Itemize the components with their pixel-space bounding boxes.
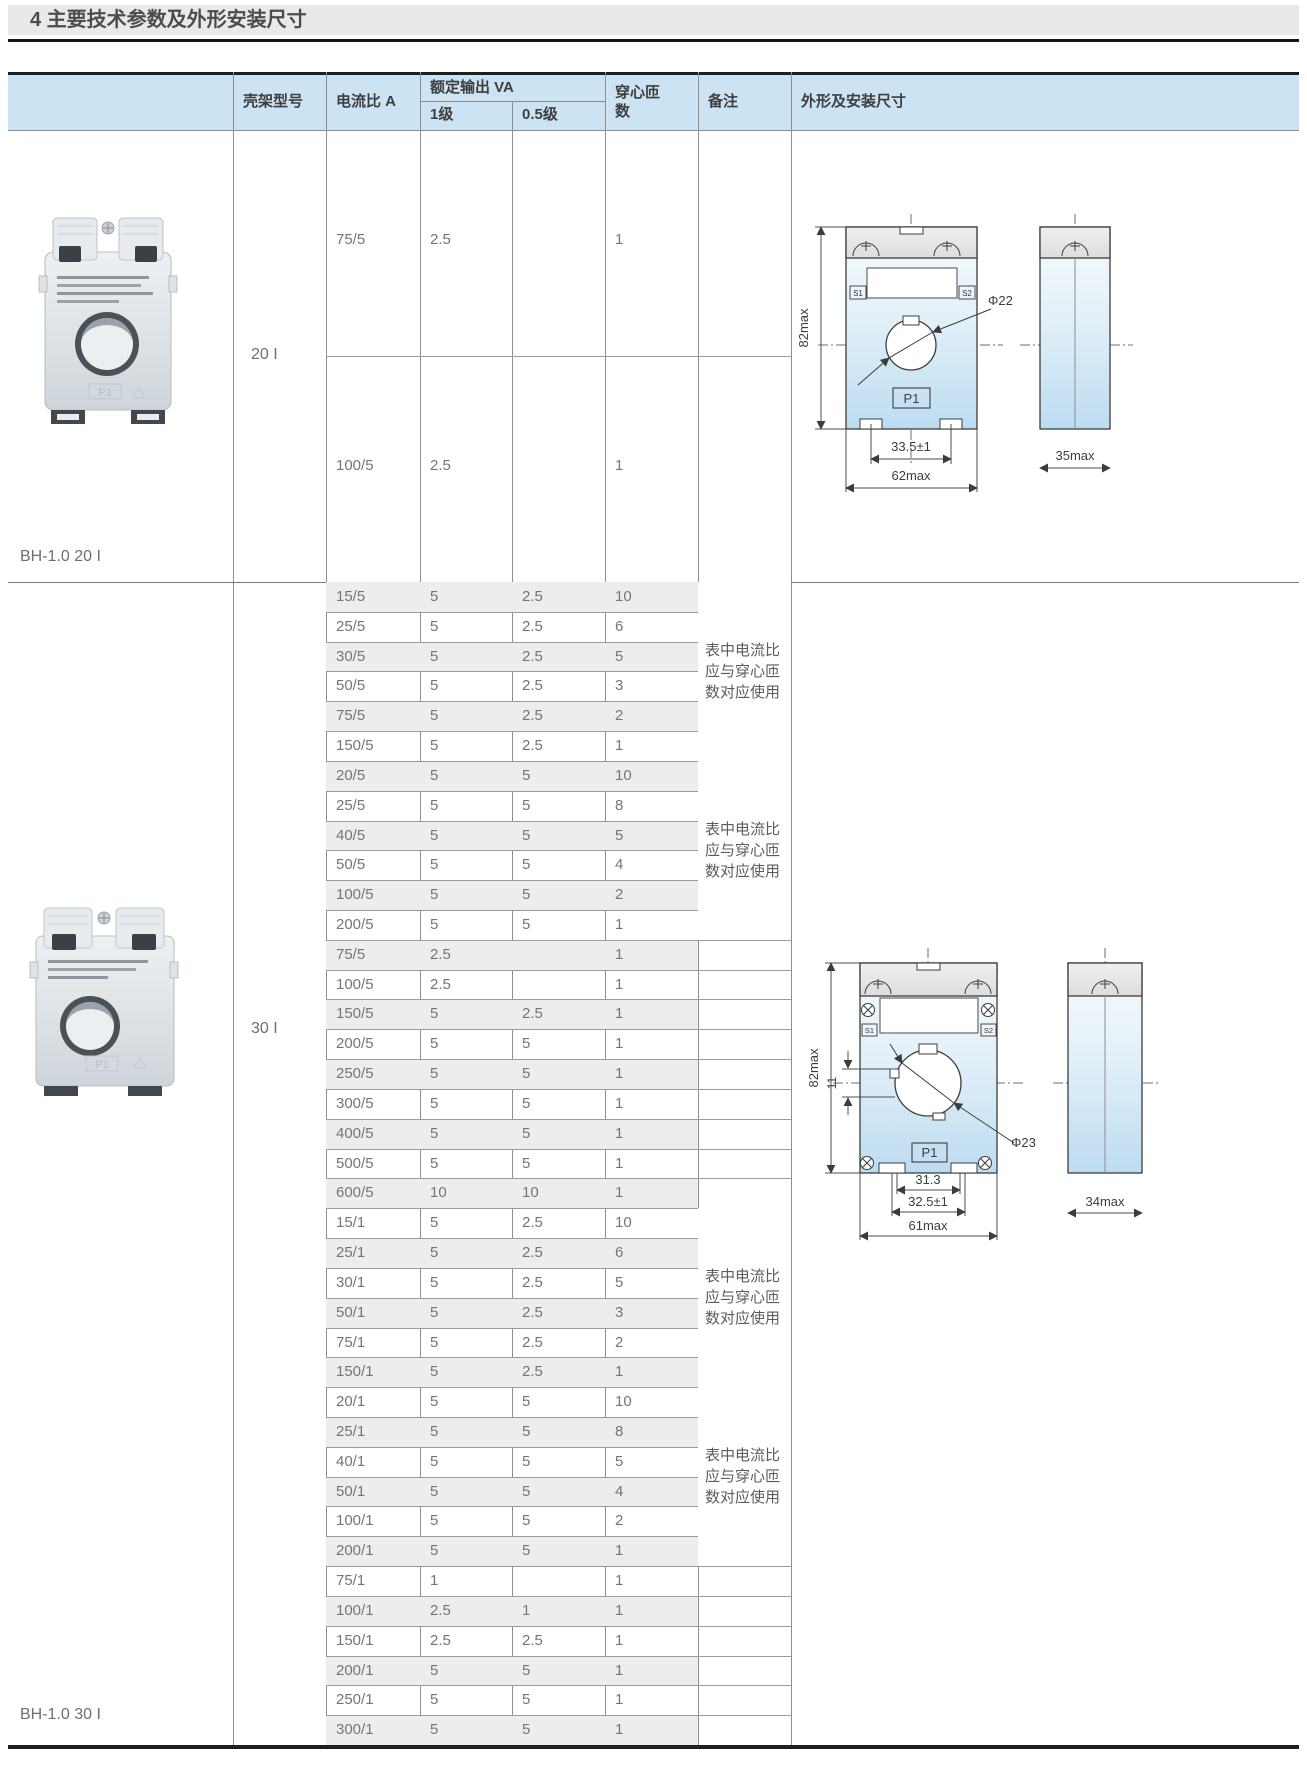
model-cell-30i: 30 I [251,1020,278,1038]
cell-ratio: 200/1 [336,1536,374,1566]
cell-ratio: 600/5 [336,1178,374,1208]
photo-p1-marking: P1 [98,387,111,399]
cell-ratio: 100/5 [336,880,374,910]
table-row-stripe [326,761,698,791]
cell-ratio: 500/5 [336,1149,374,1179]
table-row-stripe [326,880,698,910]
table-row-stripe [326,821,698,851]
row-border [326,1656,791,1657]
section-title-band: 4 主要技术参数及外形安装尺寸 [8,5,1299,35]
cell-turns: 1 [615,1685,623,1715]
row-border [326,850,698,851]
hole-diameter-label: Φ22 [988,293,1013,308]
cell-turns: 1 [615,1596,623,1626]
offset-dim-label: 11 [825,1076,839,1089]
cell-turns: 1 [615,1715,623,1745]
row-border [326,1685,791,1686]
row-border [326,1238,698,1239]
cell-turns: 1 [615,910,623,940]
datasheet-page: 4 主要技术参数及外形安装尺寸 壳架型号 电流比 A 额定输出 VA 1级 0.… [0,0,1307,1776]
cell-va05: 2.5 [522,701,543,731]
width-dim-label: 61max [908,1218,948,1233]
cell-va05: 2.5 [522,1208,543,1238]
cell-va05: 5 [522,1656,530,1686]
cell-va05: 2.5 [522,1328,543,1358]
cell-ratio: 150/5 [336,999,374,1029]
table-row-stripe [326,582,698,612]
dimension-drawing-30i: S1 S2 P1 11 Φ23 [778,932,1218,1252]
cell-va05: 5 [522,1506,530,1536]
row-border [326,1119,791,1120]
table-row-stripe [326,1238,698,1268]
cell-turns: 10 [615,1387,632,1417]
row-border [326,1178,791,1179]
table-row-stripe [326,1178,698,1208]
drawing-p1-label: P1 [922,1145,938,1160]
row-border [326,1596,791,1597]
cell-va1: 5 [430,1298,438,1328]
cell-turns: 1 [615,1656,623,1686]
cell-ratio: 25/1 [336,1238,365,1268]
table-row-stripe [326,1536,698,1566]
cell-ratio: 30/5 [336,642,365,672]
cell-ratio: 15/1 [336,1208,365,1238]
cell-turns: 5 [615,1447,623,1477]
cell-ratio: 30/1 [336,1268,365,1298]
cell-va1: 5 [430,701,438,731]
cell-ratio: 40/5 [336,821,365,851]
cell-va05: 2.5 [522,1626,543,1656]
row-border [326,1328,698,1329]
cell-va1: 5 [430,731,438,761]
cell-va1: 5 [430,671,438,701]
cell-ratio: 75/5 [336,231,365,248]
cell-turns: 8 [615,1417,623,1447]
row-border [326,1477,698,1478]
header-bottom-line [8,130,1299,131]
cell-va1: 5 [430,1656,438,1686]
cell-va1: 5 [430,880,438,910]
cell-va05: 2.5 [522,582,543,612]
row-border [326,1357,698,1358]
cell-va1: 5 [430,761,438,791]
cell-ratio: 50/5 [336,850,365,880]
product-photo-30i: P1 [28,904,180,1096]
cell-va05: 5 [522,761,530,791]
table-row-stripe [326,1059,698,1089]
header-outline: 外形及安装尺寸 [801,75,1101,130]
cell-va05: 2.5 [522,1298,543,1328]
section1-row-line [326,356,791,357]
cell-va05: 2.5 [522,612,543,642]
header-class-1: 1级 [430,101,510,130]
cell-turns: 1 [615,231,623,248]
cell-ratio: 50/1 [336,1298,365,1328]
cell-va1: 5 [430,1208,438,1238]
cell-va1: 5 [430,850,438,880]
cell-ratio: 25/5 [336,791,365,821]
cell-va1: 10 [430,1178,447,1208]
cell-turns: 1 [615,1357,623,1387]
table-row-stripe [326,999,698,1029]
cell-va1: 5 [430,1149,438,1179]
cell-va05: 1 [522,1596,530,1626]
cell-va1: 2.5 [430,970,451,1000]
cell-va05: 5 [522,850,530,880]
cell-ratio: 15/5 [336,582,365,612]
row-border [326,1447,698,1448]
remark-note: 表中电流比应与穿心匝数对应使用 [698,819,787,882]
cell-va1: 5 [430,1536,438,1566]
row-border [326,910,698,911]
cell-va05: 5 [522,821,530,851]
cell-va05: 5 [522,1119,530,1149]
row-border [326,1715,791,1716]
cell-va1: 5 [430,1477,438,1507]
product-photo-20i: P1 [33,212,183,432]
drawing-s1-label: S1 [865,1026,874,1035]
cell-va1: 5 [430,1387,438,1417]
cell-turns: 4 [615,850,623,880]
cell-ratio: 300/1 [336,1715,374,1745]
cell-turns: 1 [615,1119,623,1149]
cell-turns: 3 [615,1298,623,1328]
row-border [326,1298,698,1299]
cell-ratio: 150/5 [336,731,374,761]
cell-va05: 5 [522,1029,530,1059]
cell-va05: 5 [522,1149,530,1179]
page-title: 4 主要技术参数及外形安装尺寸 [8,5,1299,35]
model-cell-20i: 20 I [251,346,278,364]
cell-turns: 1 [615,731,623,761]
cell-turns: 5 [615,821,623,851]
remark-note: 表中电流比应与穿心匝数对应使用 [698,1266,787,1329]
table-row-stripe [326,701,698,731]
remark-cell: 表中电流比应与穿心匝数对应使用 [698,582,791,761]
cell-ratio: 100/5 [336,970,374,1000]
row-border [326,612,698,613]
cell-ratio: 150/1 [336,1357,374,1387]
cell-va1: 2.5 [430,940,451,970]
cell-turns: 1 [615,970,623,1000]
cell-ratio: 50/5 [336,671,365,701]
cell-turns: 6 [615,612,623,642]
header-current-ratio: 电流比 A [336,75,420,130]
cell-va1: 5 [430,642,438,672]
row-border [326,1417,698,1418]
remark-note: 表中电流比应与穿心匝数对应使用 [698,1445,787,1508]
cell-va05: 5 [522,880,530,910]
dimension-drawing-20i: S1 S2 P1 Φ22 82max 33.5±1 [788,202,1208,502]
cell-va05: 5 [522,910,530,940]
row-border [326,999,791,1000]
width-dim-label: 62max [891,468,931,483]
cell-turns: 1 [615,1149,623,1179]
cell-turns: 1 [615,999,623,1029]
cell-ratio: 75/5 [336,940,365,970]
row-border [326,671,698,672]
cell-va1: 5 [430,1357,438,1387]
cell-va1: 5 [430,1715,438,1745]
cell-va05: 2.5 [522,731,543,761]
cell-ratio: 40/1 [336,1447,365,1477]
row-border [326,940,791,941]
cell-turns: 1 [615,1178,623,1208]
cell-va1: 5 [430,1238,438,1268]
side-width-dim-label: 34max [1085,1194,1125,1209]
cell-ratio: 50/1 [336,1477,365,1507]
header-turns: 穿心匝数 [615,75,663,130]
grid-line [233,72,234,1745]
row-border [326,1089,791,1090]
row-border [326,731,698,732]
row-border [326,970,791,971]
cell-ratio: 200/5 [336,910,374,940]
cell-va05: 5 [522,1417,530,1447]
cell-va1: 5 [430,1268,438,1298]
cell-va05: 5 [522,791,530,821]
cell-turns: 1 [615,457,623,474]
header-remarks: 备注 [708,75,788,130]
photo-caption-20i: BH-1.0 20 I [20,548,101,566]
row-border [326,880,698,881]
cell-va05: 2.5 [522,999,543,1029]
table-row-stripe [326,642,698,672]
cell-va1: 5 [430,582,438,612]
cell-va1: 5 [430,1089,438,1119]
cell-va05: 2.5 [522,1357,543,1387]
cell-va1: 2.5 [430,231,451,248]
cell-turns: 1 [615,1566,623,1596]
cell-ratio: 75/1 [336,1328,365,1358]
row-border [326,1506,698,1507]
header-frame-model: 壳架型号 [243,75,303,130]
cell-va1: 5 [430,1447,438,1477]
feet-dim-label: 33.5±1 [891,439,931,454]
cell-ratio: 20/5 [336,761,365,791]
cell-va05: 2.5 [522,1238,543,1268]
cell-va1: 5 [430,1029,438,1059]
remark-cell: 表中电流比应与穿心匝数对应使用 [698,761,791,940]
cell-turns: 10 [615,761,632,791]
header-rated-output: 额定输出 VA [430,75,600,101]
cell-turns: 1 [615,1059,623,1089]
cell-va05: 5 [522,1059,530,1089]
cell-va1: 5 [430,1119,438,1149]
cell-va1: 5 [430,1328,438,1358]
cell-turns: 10 [615,582,632,612]
cell-va1: 5 [430,821,438,851]
va-sub-line [420,101,605,102]
cell-turns: 1 [615,1536,623,1566]
remark-cell: 表中电流比应与穿心匝数对应使用 [698,1387,791,1566]
cell-va1: 2.5 [430,1626,451,1656]
table-row-stripe [326,940,698,970]
row-border [326,821,698,822]
cell-turns: 8 [615,791,623,821]
photo-caption-30i: BH-1.0 30 I [20,1706,101,1724]
cell-ratio: 200/1 [336,1656,374,1686]
cell-va05: 2.5 [522,1268,543,1298]
cell-va05: 5 [522,1089,530,1119]
drawing-s1-label: S1 [853,289,863,298]
height-dim-label: 82max [806,1048,821,1088]
cell-turns: 1 [615,1089,623,1119]
cell-va05: 5 [522,1536,530,1566]
cell-turns: 5 [615,642,623,672]
cell-turns: 6 [615,1238,623,1268]
cell-turns: 5 [615,1268,623,1298]
row-border [326,791,698,792]
cell-turns: 2 [615,1328,623,1358]
header-class-05: 0.5级 [522,101,602,130]
cell-va1: 2.5 [430,1596,451,1626]
cell-ratio: 25/5 [336,612,365,642]
cell-va1: 5 [430,612,438,642]
cell-va1: 5 [430,1059,438,1089]
cell-turns: 3 [615,671,623,701]
cell-turns: 1 [615,1029,623,1059]
cell-turns: 1 [615,1626,623,1656]
cell-va1: 5 [430,791,438,821]
table-row-stripe [326,1357,698,1387]
cell-va1: 5 [430,1685,438,1715]
cell-va05: 2.5 [522,671,543,701]
cell-turns: 1 [615,940,623,970]
table-row-stripe [326,1298,698,1328]
table-row-stripe [326,1119,698,1149]
drawing-s2-label: S2 [984,1026,993,1035]
cell-va05: 10 [522,1178,539,1208]
cell-va1: 2.5 [430,457,451,474]
height-dim-label: 82max [796,308,811,348]
row-border [326,1566,791,1567]
cell-ratio: 150/1 [336,1626,374,1656]
row-border [326,1149,791,1150]
table-row-stripe [326,1656,698,1686]
table-row-stripe [326,1417,698,1447]
cell-ratio: 400/5 [336,1119,374,1149]
row-border [326,1536,698,1537]
row-border [326,1059,791,1060]
cell-ratio: 100/1 [336,1596,374,1626]
photo-p1-marking: P1 [95,1059,108,1071]
cell-va1: 5 [430,999,438,1029]
cell-va05: 5 [522,1477,530,1507]
inner-dim-label: 31.3 [915,1172,940,1187]
row-border [326,1626,791,1627]
cell-ratio: 300/5 [336,1089,374,1119]
cell-va1: 5 [430,910,438,940]
cell-va05: 2.5 [522,642,543,672]
cell-ratio: 75/5 [336,701,365,731]
cell-va05: 5 [522,1387,530,1417]
drawing-p1-label: P1 [904,391,920,406]
row-border [326,701,698,702]
cell-va05: 5 [522,1447,530,1477]
table-row-stripe [326,1715,698,1745]
drawing-s2-label: S2 [962,289,972,298]
hole-diameter-label: Φ23 [1011,1135,1036,1150]
cell-turns: 2 [615,701,623,731]
cell-va05: 5 [522,1685,530,1715]
side-width-dim-label: 35max [1055,448,1095,463]
cell-va1: 1 [430,1566,438,1596]
feet-dim-label: 32.5±1 [908,1194,948,1209]
cell-ratio: 200/5 [336,1029,374,1059]
cell-ratio: 75/1 [336,1566,365,1596]
cell-turns: 2 [615,880,623,910]
table-row-stripe [326,1596,698,1626]
cell-turns: 2 [615,1506,623,1536]
row-border [326,642,698,643]
table-row-stripe [326,1477,698,1507]
cell-ratio: 250/5 [336,1059,374,1089]
cell-va1: 5 [430,1417,438,1447]
cell-turns: 10 [615,1208,632,1238]
table-bottom-border [8,1745,1299,1749]
datasheet-table: 壳架型号 电流比 A 额定输出 VA 1级 0.5级 穿心匝数 备注 外形及安装… [8,72,1299,1749]
cell-ratio: 100/5 [336,457,374,474]
cell-ratio: 25/1 [336,1417,365,1447]
cell-va05: 5 [522,1715,530,1745]
row-border [326,1029,791,1030]
cell-turns: 4 [615,1477,623,1507]
row-border [326,1268,698,1269]
title-divider [8,39,1299,42]
cell-ratio: 20/1 [336,1387,365,1417]
cell-va1: 5 [430,1506,438,1536]
remark-note: 表中电流比应与穿心匝数对应使用 [698,640,787,703]
cell-ratio: 100/1 [336,1506,374,1536]
cell-ratio: 250/1 [336,1685,374,1715]
